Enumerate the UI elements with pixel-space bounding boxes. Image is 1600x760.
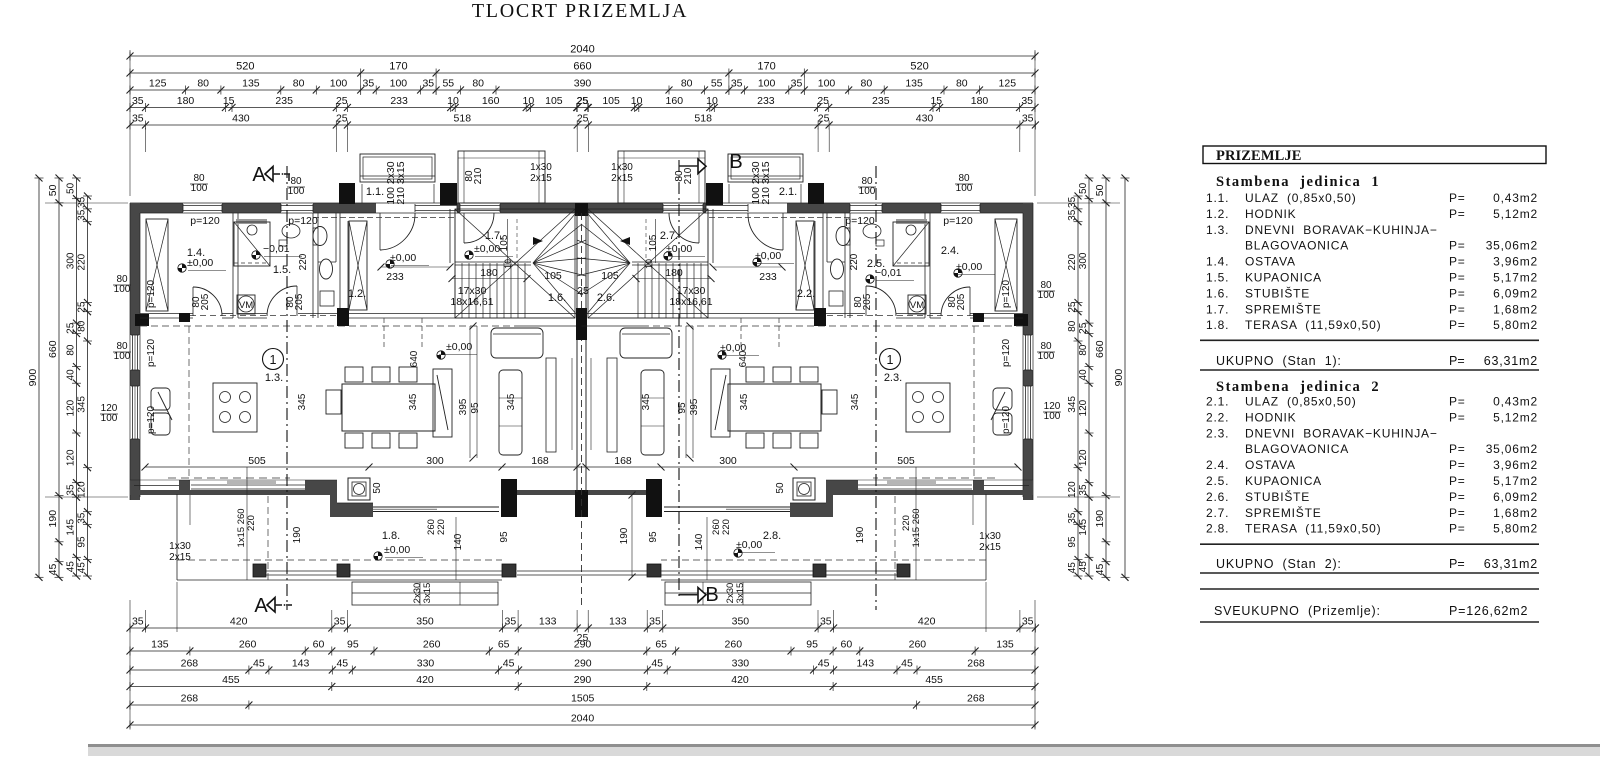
- svg-text:640: 640: [738, 350, 749, 367]
- svg-text:220: 220: [246, 515, 257, 531]
- svg-text:140: 140: [694, 533, 705, 550]
- svg-text:180: 180: [971, 95, 989, 107]
- svg-text:P=126,62m2: P=126,62m2: [1449, 604, 1528, 618]
- svg-text:ULAZ (0,85x0,50): ULAZ (0,85x0,50): [1245, 191, 1357, 205]
- svg-text:STUBIŠTE: STUBIŠTE: [1245, 285, 1310, 300]
- svg-text:p=120: p=120: [845, 215, 875, 227]
- svg-text:63,31m2: 63,31m2: [1484, 354, 1538, 368]
- svg-text:1.1.: 1.1.: [366, 186, 384, 198]
- svg-text:660: 660: [1094, 340, 1106, 358]
- svg-text:UKUPNO (Stan 1):: UKUPNO (Stan 1):: [1216, 354, 1342, 368]
- svg-text:1.6.: 1.6.: [1206, 286, 1229, 300]
- svg-text:2.1.: 2.1.: [779, 186, 797, 198]
- svg-text:TERASA (11,59x0,50): TERASA (11,59x0,50): [1245, 522, 1381, 536]
- svg-text:135: 135: [996, 639, 1014, 651]
- svg-text:345: 345: [506, 393, 517, 410]
- svg-text:520: 520: [236, 61, 254, 73]
- svg-text:60: 60: [313, 639, 325, 651]
- svg-text:45: 45: [651, 658, 663, 670]
- svg-text:35: 35: [731, 78, 743, 90]
- svg-text:45: 45: [818, 658, 830, 670]
- svg-text:P=: P=: [1449, 207, 1466, 221]
- svg-text:290: 290: [574, 674, 592, 686]
- svg-text:2040: 2040: [571, 713, 595, 725]
- svg-text:KUPAONICA: KUPAONICA: [1245, 271, 1322, 285]
- svg-text:10: 10: [447, 95, 459, 107]
- svg-text:TERASA (11,59x0,50): TERASA (11,59x0,50): [1245, 318, 1381, 332]
- svg-text:143: 143: [292, 658, 310, 670]
- svg-text:133: 133: [609, 616, 627, 628]
- svg-text:205: 205: [294, 293, 305, 310]
- svg-text:6,09m2: 6,09m2: [1493, 286, 1538, 300]
- svg-text:25: 25: [1067, 301, 1078, 313]
- svg-text:220: 220: [298, 253, 309, 270]
- svg-text:420: 420: [230, 616, 248, 628]
- svg-text:UKUPNO (Stan 2):: UKUPNO (Stan 2):: [1216, 557, 1342, 571]
- svg-text:170: 170: [757, 61, 775, 73]
- svg-text:p=120: p=120: [943, 215, 973, 227]
- svg-text:5,17m2: 5,17m2: [1493, 474, 1538, 488]
- svg-text:BLAGOVAONICA: BLAGOVAONICA: [1245, 239, 1349, 253]
- svg-text:233: 233: [757, 95, 775, 107]
- svg-text:P=: P=: [1449, 395, 1466, 409]
- svg-text:35: 35: [1067, 512, 1078, 524]
- svg-text:390: 390: [574, 78, 592, 90]
- svg-text:105: 105: [499, 234, 510, 251]
- svg-text:190: 190: [1094, 510, 1106, 528]
- svg-text:35: 35: [132, 616, 144, 628]
- svg-text:25: 25: [576, 95, 588, 107]
- svg-text:±0,00: ±0,00: [474, 243, 500, 255]
- svg-text:10: 10: [644, 259, 654, 269]
- svg-text:105: 105: [602, 95, 620, 107]
- svg-text:2.2.: 2.2.: [797, 288, 815, 300]
- svg-text:45: 45: [47, 564, 59, 576]
- svg-text:260: 260: [725, 639, 743, 651]
- svg-text:1.5.: 1.5.: [273, 264, 291, 276]
- svg-text:p=120: p=120: [288, 215, 318, 227]
- svg-text:2.4.: 2.4.: [1206, 458, 1229, 472]
- svg-text:80: 80: [77, 320, 88, 332]
- svg-text:180: 180: [177, 95, 195, 107]
- svg-text:2.7.: 2.7.: [1206, 506, 1229, 520]
- svg-text:40: 40: [1078, 369, 1089, 381]
- svg-text:10: 10: [706, 95, 718, 107]
- svg-text:170: 170: [389, 61, 407, 73]
- svg-text:105: 105: [545, 95, 563, 107]
- svg-text:KUPAONICA: KUPAONICA: [1245, 474, 1322, 488]
- svg-text:520: 520: [910, 61, 928, 73]
- svg-text:45: 45: [336, 658, 348, 670]
- svg-text:350: 350: [416, 616, 434, 628]
- svg-text:35: 35: [363, 78, 375, 90]
- svg-text:190: 190: [619, 527, 630, 544]
- svg-text:205: 205: [956, 293, 967, 310]
- svg-text:105: 105: [601, 270, 619, 282]
- svg-text:35: 35: [77, 512, 88, 524]
- svg-text:1.5.: 1.5.: [1206, 271, 1229, 285]
- svg-text:100: 100: [1038, 351, 1055, 362]
- svg-text:A: A: [252, 164, 266, 186]
- svg-text:345: 345: [1067, 396, 1078, 413]
- svg-text:45: 45: [77, 562, 88, 574]
- svg-text:HODNIK: HODNIK: [1245, 207, 1296, 221]
- svg-text:100: 100: [1044, 411, 1061, 422]
- svg-text:35: 35: [820, 616, 832, 628]
- svg-text:2x15: 2x15: [530, 173, 552, 184]
- svg-text:268: 268: [181, 658, 199, 670]
- svg-text:P=: P=: [1449, 410, 1466, 424]
- svg-text:P=: P=: [1449, 354, 1465, 368]
- svg-text:45: 45: [901, 658, 913, 670]
- svg-text:220: 220: [77, 253, 88, 270]
- svg-text:100: 100: [101, 413, 118, 424]
- svg-text:ULAZ (0,85x0,50): ULAZ (0,85x0,50): [1245, 395, 1357, 409]
- svg-text:60: 60: [841, 639, 853, 651]
- svg-text:2.3.: 2.3.: [884, 372, 902, 384]
- svg-text:80: 80: [66, 344, 77, 356]
- svg-text:900: 900: [1113, 369, 1125, 387]
- svg-text:100: 100: [114, 351, 131, 362]
- svg-text:3,96m2: 3,96m2: [1493, 458, 1538, 472]
- svg-text:80: 80: [1078, 344, 1089, 356]
- svg-text:300: 300: [719, 455, 737, 467]
- svg-text:35: 35: [422, 78, 434, 90]
- svg-text:80: 80: [197, 78, 209, 90]
- svg-text:95: 95: [648, 531, 659, 543]
- svg-text:430: 430: [916, 113, 934, 125]
- svg-text:2.8.: 2.8.: [1206, 522, 1229, 536]
- svg-text:SPREMIŠTE: SPREMIŠTE: [1245, 505, 1322, 520]
- svg-text:120: 120: [77, 481, 88, 498]
- svg-text:25: 25: [66, 322, 77, 334]
- svg-text:45: 45: [253, 658, 265, 670]
- svg-text:100: 100: [191, 183, 208, 194]
- svg-text:B: B: [729, 151, 742, 173]
- svg-text:95: 95: [806, 639, 818, 651]
- svg-text:OSTAVA: OSTAVA: [1245, 458, 1296, 472]
- svg-text:1x15 260: 1x15 260: [911, 508, 922, 547]
- svg-text:210: 210: [473, 167, 484, 184]
- svg-text:2.7.: 2.7.: [660, 230, 678, 242]
- svg-text:25: 25: [1078, 322, 1089, 334]
- svg-text:233: 233: [386, 271, 404, 283]
- svg-text:145: 145: [66, 519, 77, 536]
- svg-text:205: 205: [862, 293, 873, 310]
- svg-text:210 3x15: 210 3x15: [760, 161, 772, 204]
- svg-text:100: 100: [818, 78, 836, 90]
- svg-text:35: 35: [1021, 95, 1033, 107]
- svg-text:STUBIŠTE: STUBIŠTE: [1245, 489, 1310, 504]
- svg-text:1.6.: 1.6.: [548, 292, 566, 304]
- svg-text:1,68m2: 1,68m2: [1493, 506, 1538, 520]
- svg-text:220: 220: [1067, 253, 1078, 270]
- svg-text:420: 420: [918, 616, 936, 628]
- svg-text:2x15: 2x15: [169, 552, 191, 563]
- svg-text:5,80m2: 5,80m2: [1493, 522, 1538, 536]
- svg-text:VM: VM: [239, 300, 253, 311]
- svg-text:63,31m2: 63,31m2: [1484, 557, 1538, 571]
- svg-text:260: 260: [909, 639, 927, 651]
- svg-text:35: 35: [132, 95, 144, 107]
- svg-text:80: 80: [861, 78, 873, 90]
- svg-text:1x30: 1x30: [611, 162, 633, 173]
- svg-text:180: 180: [665, 267, 683, 279]
- svg-text:330: 330: [417, 658, 435, 670]
- svg-text:120: 120: [66, 399, 77, 416]
- svg-text:35: 35: [66, 484, 77, 496]
- svg-text:210: 210: [683, 167, 694, 184]
- svg-text:P=: P=: [1449, 302, 1466, 316]
- svg-text:45: 45: [503, 658, 515, 670]
- svg-text:235: 235: [275, 95, 293, 107]
- svg-text:35: 35: [1067, 209, 1078, 221]
- svg-text:TLOCRT PRIZEMLJA: TLOCRT PRIZEMLJA: [472, 0, 688, 22]
- svg-text:120: 120: [1067, 481, 1078, 498]
- svg-text:95: 95: [470, 402, 481, 414]
- svg-text:5,12m2: 5,12m2: [1493, 410, 1538, 424]
- svg-text:268: 268: [967, 658, 985, 670]
- svg-text:100: 100: [1038, 290, 1055, 301]
- svg-text:25: 25: [577, 113, 589, 125]
- svg-text:95: 95: [499, 531, 510, 543]
- svg-text:345: 345: [641, 393, 652, 410]
- svg-text:−0,01: −0,01: [263, 243, 290, 255]
- svg-text:2.3.: 2.3.: [1206, 426, 1229, 440]
- svg-text:15: 15: [223, 95, 235, 107]
- svg-text:268: 268: [967, 693, 985, 705]
- svg-text:DNEVNI BORAVAK−KUHINJA−: DNEVNI BORAVAK−KUHINJA−: [1245, 223, 1438, 237]
- svg-text:1.8.: 1.8.: [382, 530, 400, 542]
- svg-text:660: 660: [573, 61, 591, 73]
- svg-text:2.4.: 2.4.: [941, 245, 959, 257]
- svg-text:18x16,61: 18x16,61: [669, 296, 712, 308]
- svg-text:VM: VM: [910, 300, 924, 311]
- svg-text:518: 518: [694, 113, 712, 125]
- svg-text:1.2.: 1.2.: [348, 288, 366, 300]
- svg-text:10: 10: [631, 95, 643, 107]
- svg-text:133: 133: [539, 616, 557, 628]
- svg-text:p=120: p=120: [146, 280, 157, 309]
- svg-text:10: 10: [503, 259, 513, 269]
- svg-text:1505: 1505: [571, 693, 595, 705]
- svg-text:505: 505: [248, 455, 266, 467]
- svg-text:260: 260: [239, 639, 257, 651]
- svg-text:0,43m2: 0,43m2: [1493, 191, 1538, 205]
- svg-text:25: 25: [577, 632, 589, 644]
- svg-text:35,06m2: 35,06m2: [1486, 442, 1538, 456]
- svg-text:190: 190: [855, 526, 866, 543]
- svg-text:35: 35: [77, 196, 88, 208]
- svg-text:35: 35: [791, 78, 803, 90]
- svg-text:25: 25: [818, 113, 830, 125]
- svg-text:55: 55: [711, 78, 723, 90]
- svg-text:135: 135: [905, 78, 923, 90]
- svg-text:120: 120: [1078, 449, 1089, 466]
- svg-text:260: 260: [423, 639, 441, 651]
- svg-text:300: 300: [426, 455, 444, 467]
- svg-text:45: 45: [1078, 561, 1089, 573]
- svg-text:2040: 2040: [570, 44, 594, 56]
- svg-text:125: 125: [149, 78, 167, 90]
- svg-text:190: 190: [47, 510, 59, 528]
- svg-text:160: 160: [666, 95, 684, 107]
- svg-text:10: 10: [523, 95, 535, 107]
- svg-text:268: 268: [181, 693, 199, 705]
- svg-text:65: 65: [655, 639, 667, 651]
- svg-text:65: 65: [498, 639, 510, 651]
- svg-text:P=: P=: [1449, 239, 1466, 253]
- svg-text:80: 80: [472, 78, 484, 90]
- svg-text:35: 35: [77, 209, 88, 221]
- svg-text:135: 135: [242, 78, 260, 90]
- svg-text:220: 220: [849, 253, 860, 270]
- svg-text:430: 430: [232, 113, 250, 125]
- svg-text:SPREMIŠTE: SPREMIŠTE: [1245, 301, 1322, 316]
- svg-text:135: 135: [151, 639, 169, 651]
- svg-text:145: 145: [1078, 519, 1089, 536]
- svg-text:160: 160: [482, 95, 500, 107]
- svg-text:420: 420: [731, 674, 749, 686]
- svg-text:345: 345: [850, 393, 861, 410]
- svg-text:25: 25: [336, 113, 348, 125]
- svg-text:P=: P=: [1449, 490, 1466, 504]
- svg-text:A: A: [254, 595, 268, 617]
- svg-text:P=: P=: [1449, 557, 1465, 571]
- svg-text:p=120: p=120: [1001, 406, 1012, 435]
- svg-text:3,96m2: 3,96m2: [1493, 255, 1538, 269]
- svg-text:45: 45: [66, 561, 77, 573]
- svg-text:233: 233: [390, 95, 408, 107]
- svg-text:18x16,61: 18x16,61: [450, 296, 493, 308]
- svg-text:100: 100: [859, 186, 876, 197]
- svg-text:2.2.: 2.2.: [1206, 410, 1229, 424]
- svg-text:1x30: 1x30: [169, 541, 191, 552]
- svg-text:0,43m2: 0,43m2: [1493, 395, 1538, 409]
- svg-text:395: 395: [689, 398, 700, 415]
- svg-text:345: 345: [408, 393, 419, 410]
- svg-text:190: 190: [292, 526, 303, 543]
- svg-text:233: 233: [759, 271, 777, 283]
- svg-text:1: 1: [887, 353, 894, 367]
- svg-text:1: 1: [270, 353, 277, 367]
- svg-text:45: 45: [1067, 562, 1078, 574]
- svg-text:BLAGOVAONICA: BLAGOVAONICA: [1245, 442, 1349, 456]
- svg-text:Stambena jedinica 2: Stambena jedinica 2: [1216, 379, 1380, 395]
- svg-text:2x15: 2x15: [611, 173, 633, 184]
- svg-text:455: 455: [222, 674, 240, 686]
- svg-text:80: 80: [293, 78, 305, 90]
- svg-text:143: 143: [857, 658, 875, 670]
- svg-text:50: 50: [775, 482, 786, 494]
- svg-text:3x15: 3x15: [735, 583, 746, 604]
- svg-text:p=120: p=120: [146, 339, 157, 368]
- svg-text:100: 100: [330, 78, 348, 90]
- svg-text:40: 40: [66, 369, 77, 381]
- svg-text:35: 35: [132, 113, 144, 125]
- svg-text:220: 220: [901, 515, 912, 531]
- svg-text:p=120: p=120: [190, 215, 220, 227]
- svg-text:120: 120: [1078, 399, 1089, 416]
- svg-text:105: 105: [544, 270, 562, 282]
- svg-text:35: 35: [334, 616, 346, 628]
- svg-text:±0,00: ±0,00: [384, 544, 410, 556]
- svg-text:100: 100: [114, 284, 131, 295]
- svg-text:P=: P=: [1449, 286, 1466, 300]
- svg-text:25: 25: [336, 95, 348, 107]
- svg-text:p=120: p=120: [146, 406, 157, 435]
- svg-text:168: 168: [614, 455, 632, 467]
- svg-text:25: 25: [77, 301, 88, 313]
- svg-text:P=: P=: [1449, 474, 1466, 488]
- svg-text:PRIZEMLJE: PRIZEMLJE: [1216, 148, 1302, 164]
- svg-text:345: 345: [77, 396, 88, 413]
- svg-text:35: 35: [1078, 484, 1089, 496]
- svg-text:300: 300: [66, 252, 77, 269]
- svg-text:210 3x15: 210 3x15: [395, 161, 407, 204]
- svg-text:1,68m2: 1,68m2: [1493, 302, 1538, 316]
- svg-text:455: 455: [925, 674, 943, 686]
- svg-text:105: 105: [648, 234, 659, 251]
- svg-text:95: 95: [677, 402, 688, 414]
- svg-text:15: 15: [930, 95, 942, 107]
- svg-text:OSTAVA: OSTAVA: [1245, 255, 1296, 269]
- svg-text:−0,01: −0,01: [875, 267, 902, 279]
- svg-text:518: 518: [454, 113, 472, 125]
- svg-text:3x15: 3x15: [422, 583, 433, 604]
- svg-text:1.8.: 1.8.: [1206, 318, 1229, 332]
- svg-text:290: 290: [574, 658, 592, 670]
- svg-text:35: 35: [1067, 196, 1078, 208]
- svg-text:35: 35: [1022, 113, 1034, 125]
- svg-text:2x15: 2x15: [979, 542, 1001, 553]
- svg-text:505: 505: [897, 455, 915, 467]
- svg-text:1.3.: 1.3.: [265, 372, 283, 384]
- svg-text:P=: P=: [1449, 191, 1466, 205]
- svg-text:50: 50: [47, 184, 59, 196]
- svg-text:±0,00: ±0,00: [446, 341, 472, 353]
- svg-text:P=: P=: [1449, 255, 1466, 269]
- svg-text:100: 100: [758, 78, 776, 90]
- svg-text:SVEUKUPNO (Prizemlje):: SVEUKUPNO (Prizemlje):: [1214, 604, 1381, 618]
- svg-text:HODNIK: HODNIK: [1245, 410, 1296, 424]
- svg-text:640: 640: [409, 350, 420, 367]
- svg-text:80: 80: [956, 78, 968, 90]
- svg-text:1x30: 1x30: [530, 162, 552, 173]
- svg-text:2.6.: 2.6.: [597, 292, 615, 304]
- svg-text:420: 420: [416, 674, 434, 686]
- svg-text:120: 120: [66, 449, 77, 466]
- svg-text:80: 80: [681, 78, 693, 90]
- svg-text:220: 220: [436, 519, 447, 535]
- svg-text:5,80m2: 5,80m2: [1493, 318, 1538, 332]
- svg-text:95: 95: [1067, 536, 1078, 548]
- svg-text:205: 205: [200, 293, 211, 310]
- svg-text:P=: P=: [1449, 458, 1466, 472]
- svg-text:1.1.: 1.1.: [1206, 191, 1229, 205]
- svg-text:80: 80: [1067, 320, 1078, 332]
- svg-text:±0,00: ±0,00: [187, 257, 213, 269]
- svg-text:p=120: p=120: [1001, 339, 1012, 368]
- svg-text:P=: P=: [1449, 318, 1466, 332]
- svg-text:1.2.: 1.2.: [1206, 207, 1229, 221]
- svg-text:2.1.: 2.1.: [1206, 395, 1229, 409]
- svg-text:220: 220: [721, 519, 732, 535]
- svg-text:1.4.: 1.4.: [1206, 255, 1229, 269]
- svg-text:P=: P=: [1449, 522, 1466, 536]
- svg-text:B: B: [705, 584, 718, 606]
- svg-text:5,17m2: 5,17m2: [1493, 271, 1538, 285]
